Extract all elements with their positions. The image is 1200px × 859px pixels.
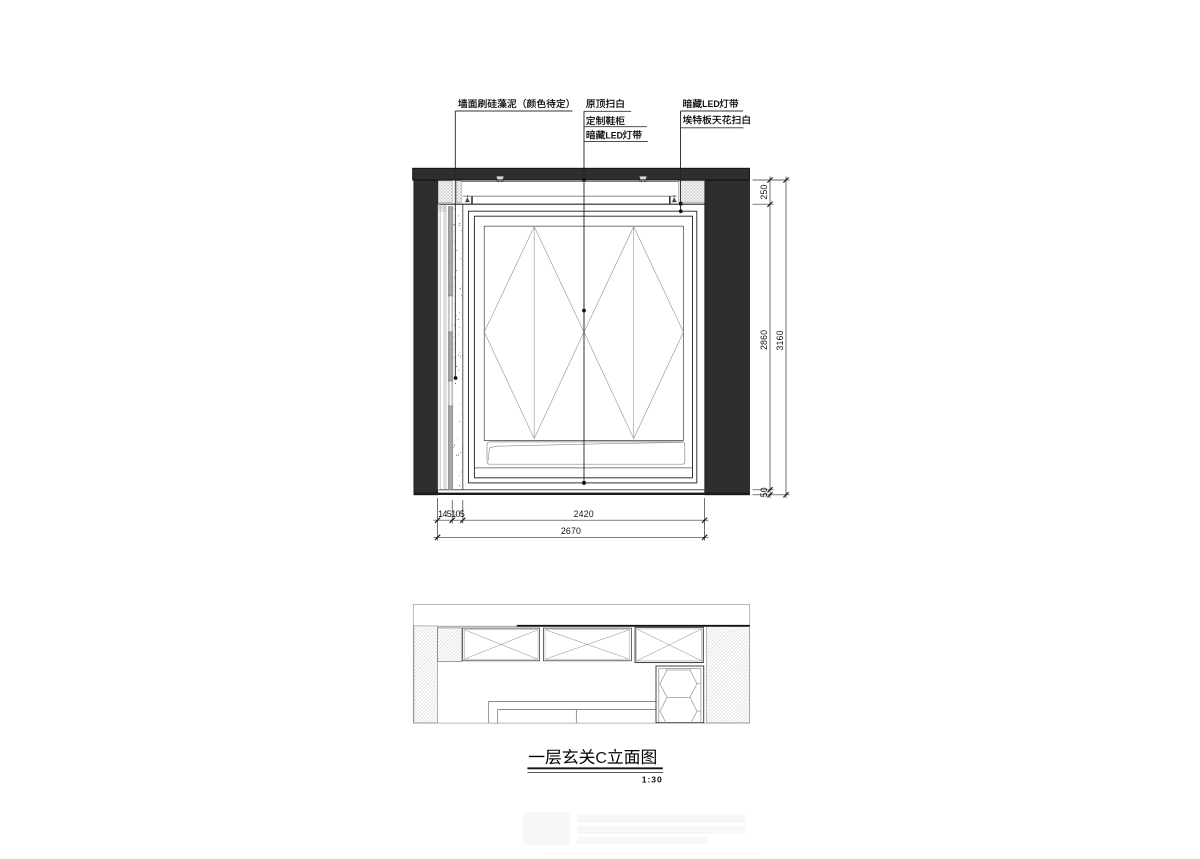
- svg-text:50: 50: [759, 487, 769, 497]
- svg-text:2420: 2420: [574, 509, 594, 519]
- svg-text:LED: LED: [605, 131, 623, 141]
- svg-text:1:30: 1:30: [642, 774, 662, 784]
- svg-text:C: C: [595, 750, 607, 767]
- svg-text:LED: LED: [702, 99, 720, 109]
- svg-text:2670: 2670: [561, 526, 581, 536]
- svg-text:105: 105: [451, 509, 465, 519]
- svg-text:250: 250: [759, 185, 769, 200]
- svg-text:2860: 2860: [759, 330, 769, 350]
- svg-text:145: 145: [438, 509, 452, 519]
- svg-text:3160: 3160: [775, 330, 785, 350]
